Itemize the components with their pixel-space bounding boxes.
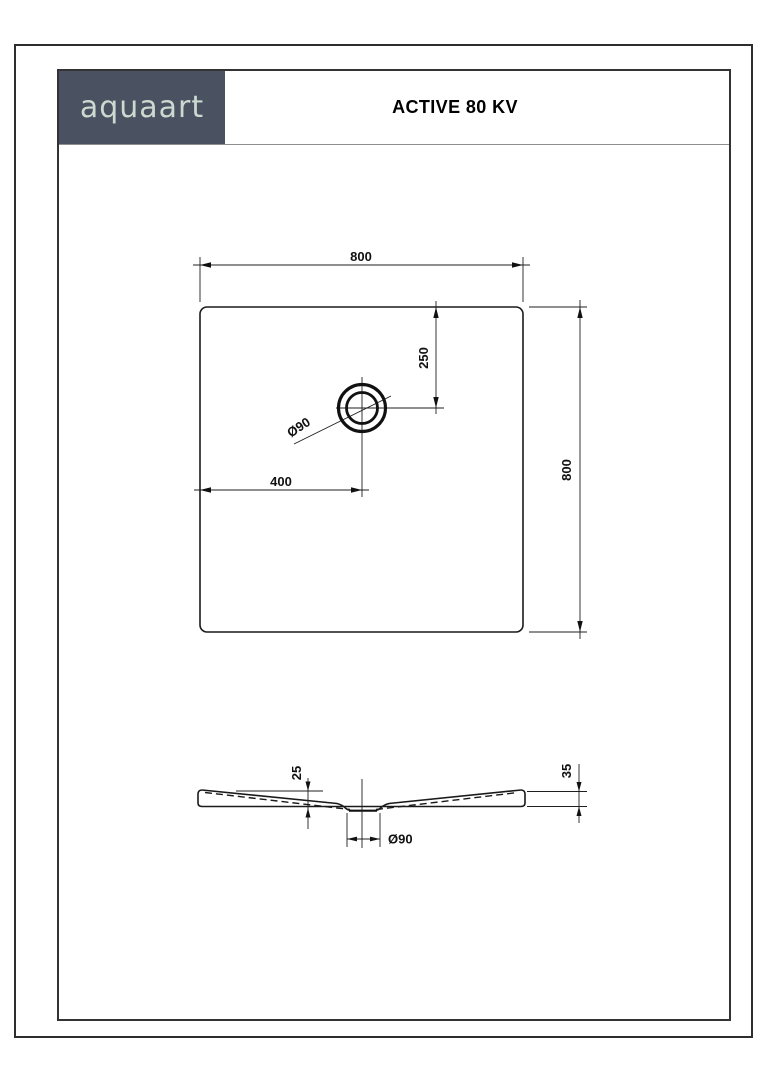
tray-right-end bbox=[521, 790, 525, 807]
section-view-drawing: 25 35 Ø90 bbox=[198, 764, 587, 848]
top-view-width-label: 800 bbox=[350, 249, 372, 264]
drawing-sheet: aquaart ACTIVE 80 KV bbox=[0, 0, 768, 1086]
section-depth-label: 25 bbox=[289, 766, 304, 780]
tray-left-end bbox=[198, 790, 202, 807]
technical-drawing: 800 800 250 400 Ø90 bbox=[0, 0, 768, 1086]
section-edge-height-label: 35 bbox=[559, 764, 574, 778]
drain-offset-top-label: 250 bbox=[416, 347, 431, 369]
tray-outline-plan bbox=[200, 307, 523, 632]
section-drain-diameter-label: Ø90 bbox=[388, 832, 413, 847]
top-view-height-label: 800 bbox=[559, 459, 574, 481]
tray-top-profile bbox=[202, 790, 521, 811]
drain-offset-left-label: 400 bbox=[270, 474, 292, 489]
top-view-drawing: 800 800 250 400 Ø90 bbox=[193, 249, 587, 639]
